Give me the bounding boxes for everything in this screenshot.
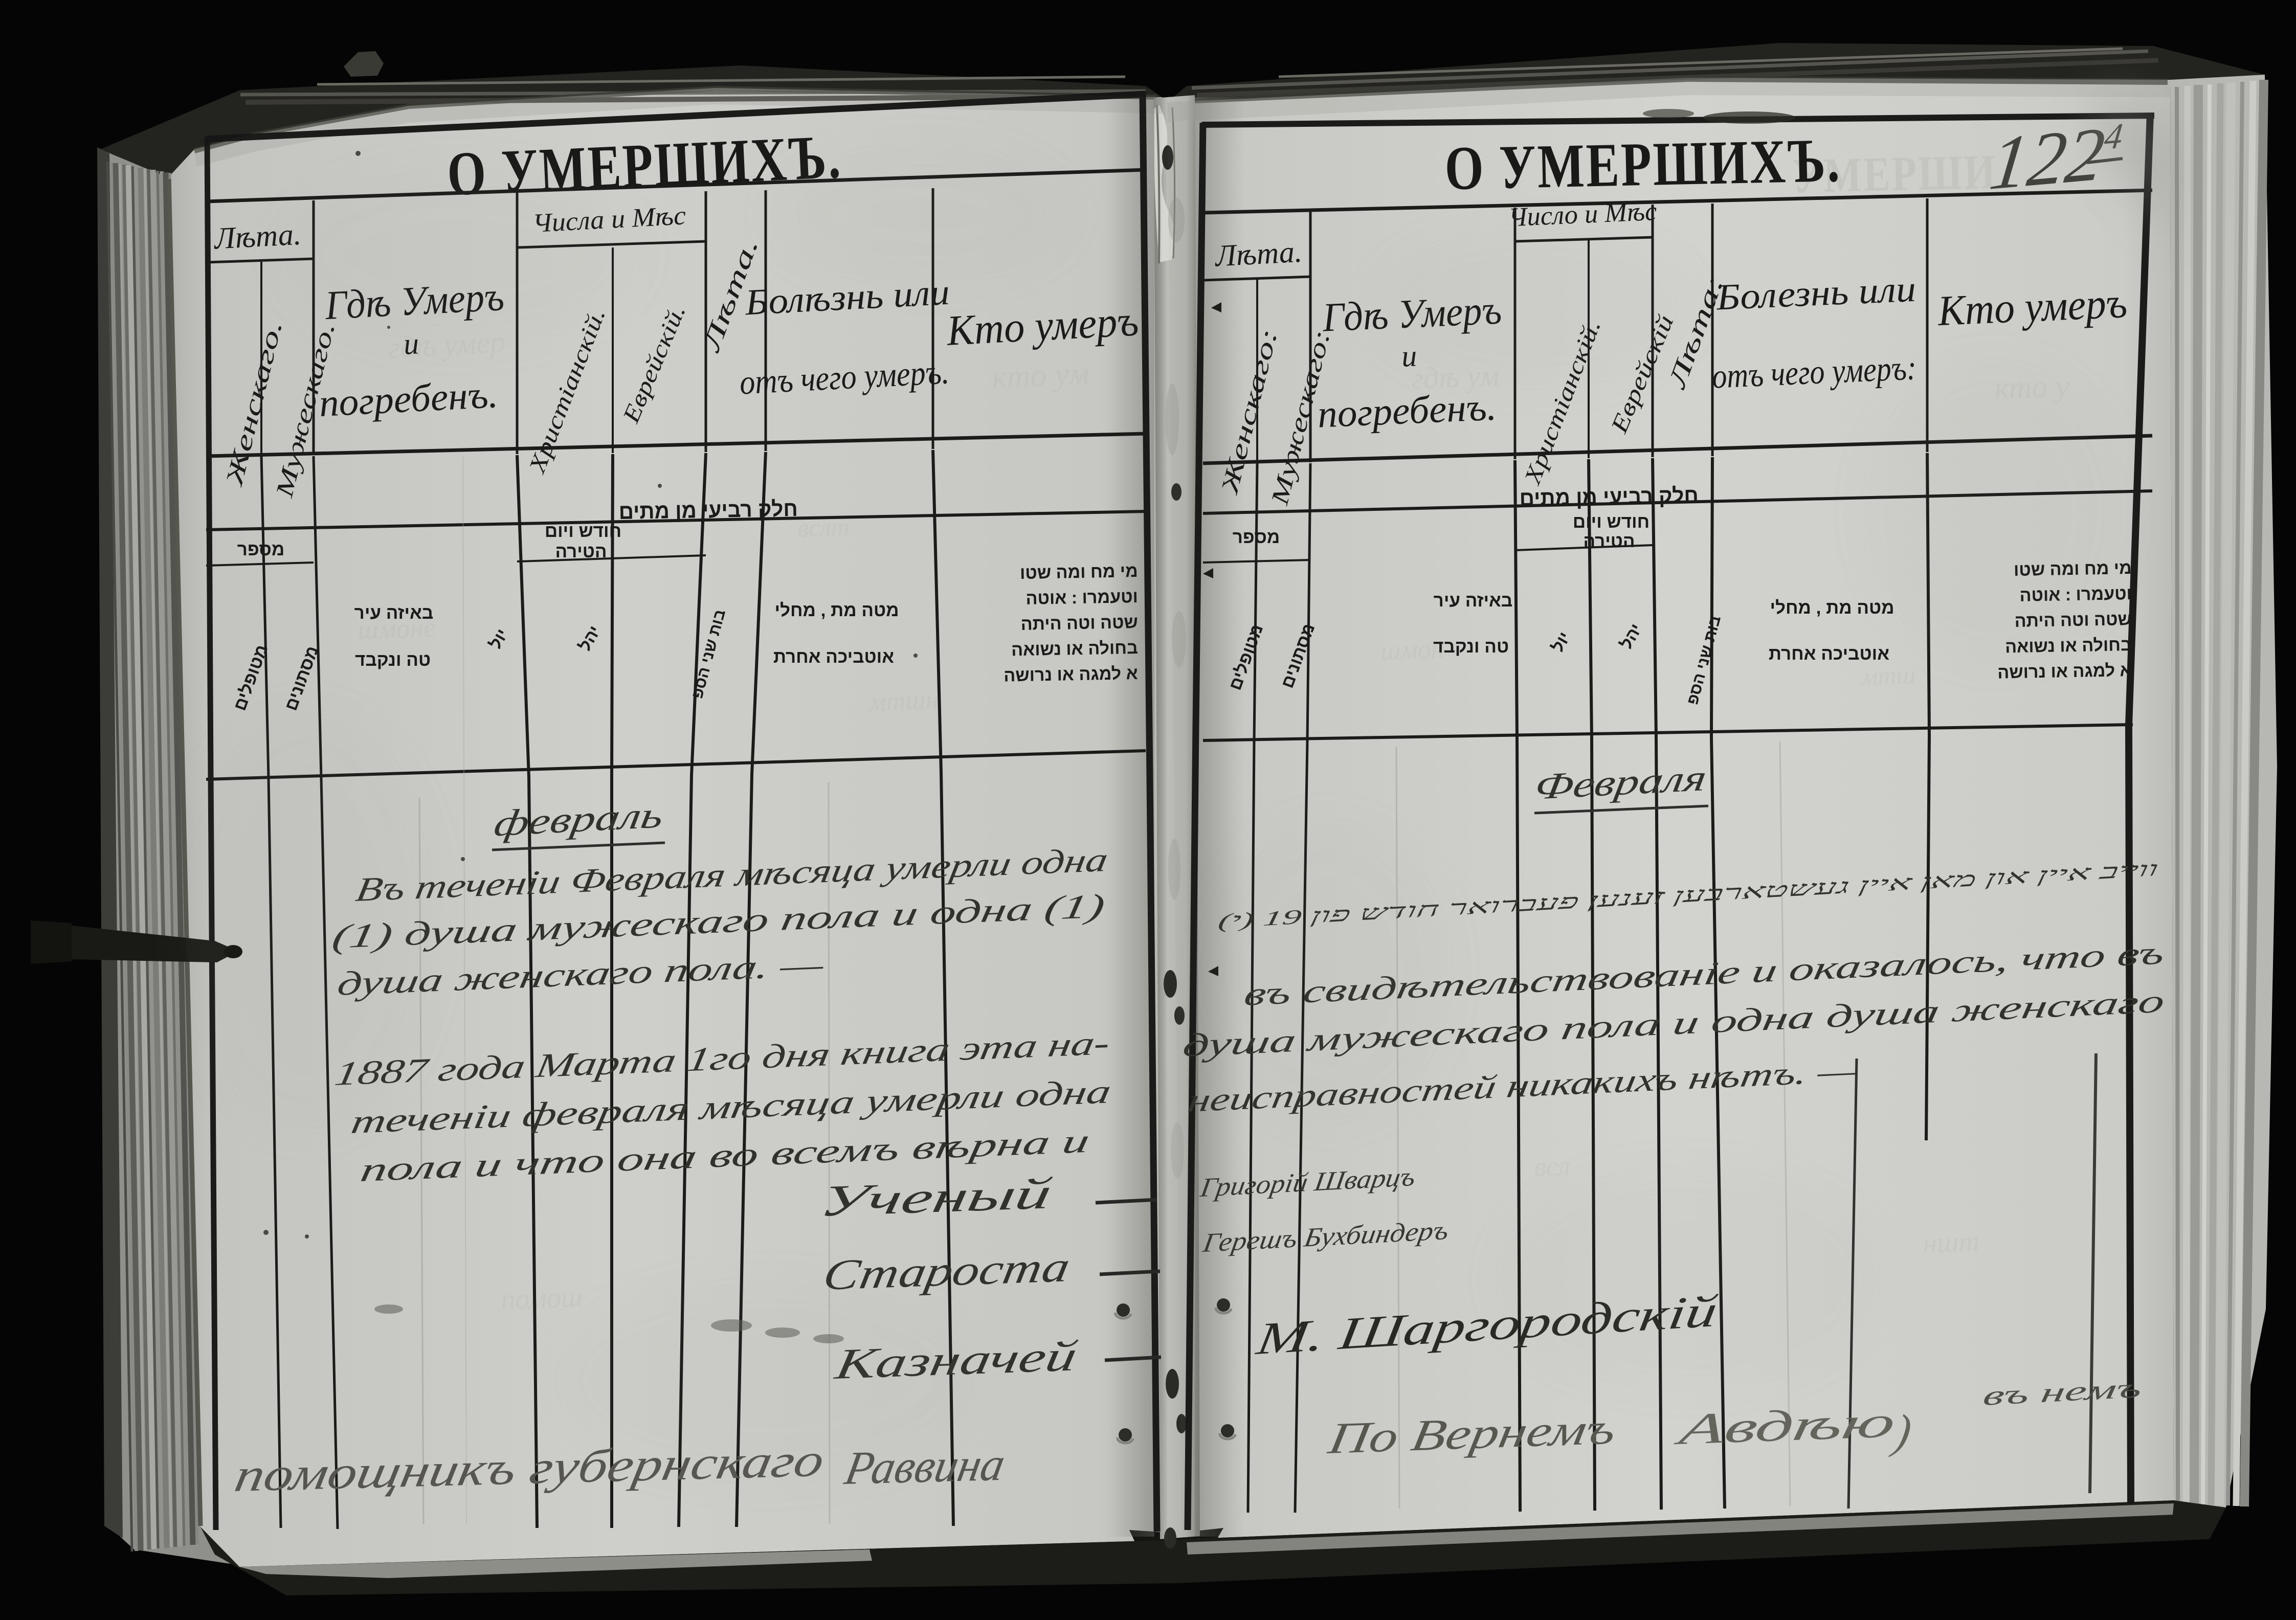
svg-text:всл: всл bbox=[1533, 1151, 1570, 1182]
svg-text:вслт: вслт bbox=[797, 512, 850, 542]
svg-text:помош: помош bbox=[500, 1281, 583, 1316]
svg-text:шмон: шмон bbox=[1380, 635, 1444, 666]
svg-text:кто ум: кто ум bbox=[991, 354, 1090, 396]
svg-text:мтшн: мтшн bbox=[867, 685, 939, 717]
svg-text:шмоне: шмоне bbox=[357, 612, 436, 645]
svg-text:ншт: ншт bbox=[1922, 1226, 1980, 1259]
svg-text:мтш: мтш bbox=[1860, 660, 1916, 691]
